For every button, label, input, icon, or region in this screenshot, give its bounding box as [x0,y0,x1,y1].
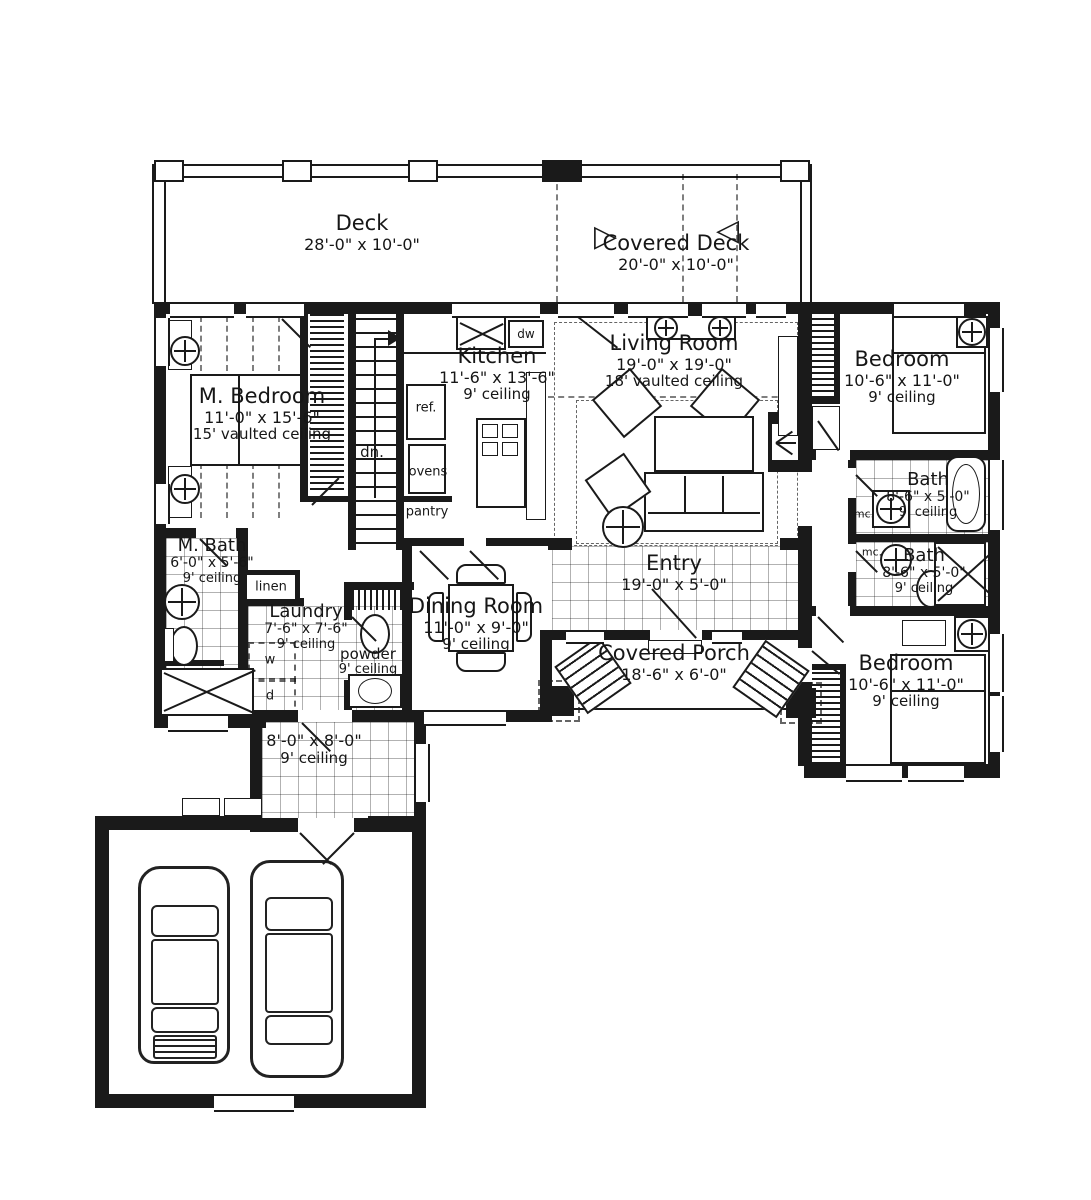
covered-deck-edge-right [800,164,812,304]
garage-service-door [214,1094,294,1112]
room-label-mud-hall: 8'-0" x 8'-0" 9' ceiling [266,732,361,767]
window [168,714,228,732]
exterior-step [224,798,262,816]
car-rear-window [265,1015,333,1045]
deck-post [542,160,582,182]
round-side-table [602,506,644,548]
covered-deck-roof-line [556,174,558,302]
deck-post [154,160,184,182]
cooktop-burner [482,424,498,438]
window [988,634,1004,692]
door-opening [848,544,856,572]
car [138,866,230,1064]
tag-medicine-cabinet-upper: mc. [854,508,874,521]
wall-entry-right [798,538,812,632]
room-label-m-bath: M. Bath 6'-0" x 5'-6" 9' ceiling [170,536,254,586]
room-label-kitchen: Kitchen 11'-6" x 13'-6" 9' ceiling [439,345,555,403]
sofa-cushion-line [684,476,686,512]
wall-bath-divider [850,534,1000,542]
room-label-deck: Deck 28'-0" x 10'-0" [304,212,420,253]
stair-arrow-line [374,338,376,498]
car-roof [265,933,333,1013]
sofa-seat-line [648,512,760,514]
wall-wing-bottom [804,764,1000,778]
sofa-cushion-line [722,476,724,512]
door-opening [298,818,354,832]
coffee-table [654,416,754,472]
fireplace-fire-icon [778,442,796,444]
window [424,710,506,726]
toilet-tank [164,628,174,662]
dresser [902,620,946,646]
wall-kitchen-bottom [404,538,464,546]
closet-hanging-clothes [352,590,404,610]
toilet [170,626,198,666]
tag-washer: w [265,653,276,668]
room-label-covered-porch: Covered Porch 18'-6" x 6'-0" [598,642,750,683]
window [908,764,964,782]
window [702,302,746,318]
wall-stair-left [348,302,356,550]
lamp-icon [170,336,200,366]
door-opening [816,450,850,460]
car [250,860,344,1078]
window [988,328,1004,392]
room-label-dining-room: Dining Room 11'-0" x 9'-0" 9' ceiling [409,595,543,653]
tag-ovens: ovens [409,465,448,480]
console-table [778,336,798,436]
wall-garage-top [95,816,255,830]
car-rear-window [151,1007,219,1033]
floor-plan: ▷ ◁ [0,0,1091,1200]
deck-railing-left [152,164,166,304]
cooktop-burner [502,442,518,456]
bathroom-sink [164,584,200,620]
deck-post [408,160,438,182]
tag-dishwasher: dw [517,327,534,341]
dining-chair [456,564,506,584]
room-label-bath-upper: Bath 8'-6" x 5'-0" 9' ceiling [886,470,970,520]
wall-pantry-top [404,496,452,502]
door-opening [298,710,352,722]
tag-medicine-cabinet-lower: mc. [862,546,882,559]
jamb [798,526,812,538]
car-grille [153,1035,217,1059]
window [988,696,1004,752]
wall-garage-left [95,816,109,1108]
window [170,302,234,318]
ceiling-light-icon [958,318,986,346]
window [154,484,170,524]
powder-sink [358,678,392,704]
wall-kitchen-bottom [486,538,548,546]
room-label-powder: powder 9' ceiling [339,646,397,677]
window [452,302,540,318]
window [756,302,786,318]
cooktop-burner [482,442,498,456]
door-opening [848,468,856,498]
tag-refrigerator: ref. [416,401,437,416]
window [246,302,304,318]
room-label-laundry: Laundry 7'-6" x 7'-6" 9' ceiling [264,602,348,652]
door-swing [419,550,449,580]
window [558,302,614,318]
window [988,460,1004,530]
room-label-bedroom-upper: Bedroom 10'-6" x 11'-0" 9' ceiling [844,348,960,406]
wall-closet-upper [834,302,840,402]
cooktop-burner [502,424,518,438]
closet-hanging-clothes [812,312,836,400]
closet-hanging-clothes [812,672,840,766]
window [894,302,964,318]
room-label-bedroom-lower: Bedroom 10'-6" x 11'-0" 9' ceiling [848,652,964,710]
deck-door [628,302,688,318]
room-label-bath-lower: Bath 8'-6" x 5'-0" 9' ceiling [882,546,966,596]
wall-closet-lower [840,664,846,768]
deck-post [780,160,810,182]
exterior-step [182,798,220,816]
window [846,764,902,782]
car-windshield [151,905,219,937]
lamp-icon [170,474,200,504]
sofa [644,472,764,532]
tag-linen: linen [255,580,287,595]
ceiling-light-icon [957,619,987,649]
car-roof [151,939,219,1005]
room-label-living-room: Living Room 19'-0" x 19'-0" 18' vaulted … [605,332,743,390]
stair-arrow-head [388,330,401,346]
door-opening [816,606,850,616]
ceiling-line [548,396,798,398]
porch-post [544,686,574,716]
deck-railing-top [158,164,808,178]
dresser [812,406,840,450]
wall-garage-right [412,828,426,1108]
side-door [414,744,430,802]
window [154,318,170,366]
door-swing [817,616,844,643]
wall-closet-upper [810,398,840,404]
car-windshield [265,897,333,931]
jamb [548,538,572,550]
tag-dryer: d [266,689,274,704]
tag-pantry: pantry [406,505,449,520]
room-label-covered-deck: Covered Deck 20'-0" x 10'-0" [603,232,750,273]
door-swing [322,832,355,865]
tag-stairs-down: dn. [360,443,384,461]
deck-post [282,160,312,182]
room-label-m-bedroom: M. Bedroom 11'-0" x 15'-6" 15' vaulted c… [193,385,331,443]
room-label-entry: Entry 19'-0" x 5'-0" [621,552,727,593]
dining-chair [456,652,506,672]
